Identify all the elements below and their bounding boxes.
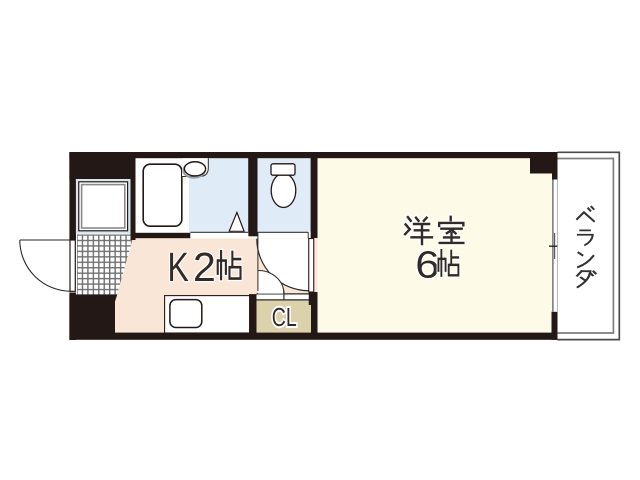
svg-text:K: K (168, 244, 190, 290)
svg-text:CL: CL (272, 302, 297, 332)
svg-text:6: 6 (415, 243, 439, 286)
svg-text:2: 2 (193, 244, 216, 290)
